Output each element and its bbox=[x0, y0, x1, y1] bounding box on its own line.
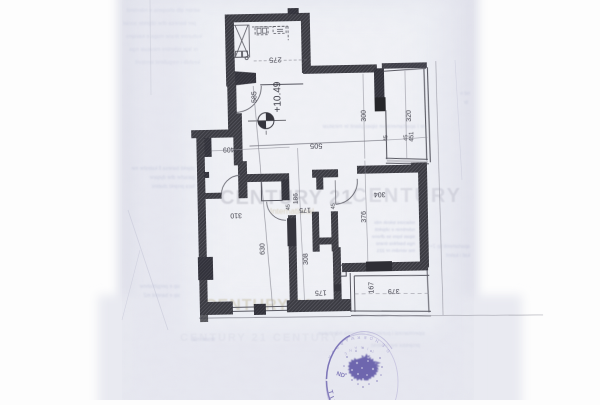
svg-text:sip e banimit m2: sip e banimit m2 bbox=[143, 293, 180, 299]
svg-text:304: 304 bbox=[374, 190, 386, 197]
svg-text:nr leje ndertimi miratuar nga: nr leje ndertimi miratuar nga bbox=[129, 47, 198, 53]
svg-text:45: 45 bbox=[286, 204, 292, 210]
svg-text:ndertimin e objektit: ndertimin e objektit bbox=[374, 227, 415, 233]
svg-text:kati i katert: kati i katert bbox=[445, 253, 470, 259]
svg-text:E: E bbox=[363, 335, 366, 340]
svg-text:R: R bbox=[357, 335, 360, 340]
svg-text:379: 379 bbox=[388, 287, 400, 294]
svg-text:kulturore tirane rruga e kavaj: kulturore tirane rruga e kavajes bbox=[126, 34, 202, 40]
svg-text:310: 310 bbox=[230, 211, 242, 218]
svg-text:308: 308 bbox=[303, 253, 310, 265]
svg-text:me vendim nr 221: me vendim nr 221 bbox=[376, 248, 415, 254]
svg-text:+10.49: +10.49 bbox=[272, 81, 284, 113]
svg-text:CENTURY: CENTURY bbox=[352, 185, 462, 207]
svg-text:451: 451 bbox=[409, 131, 415, 142]
svg-text:585: 585 bbox=[251, 91, 258, 103]
svg-text:sip e pergjithshme: sip e pergjithshme bbox=[139, 284, 180, 290]
svg-text:tir: tir bbox=[464, 100, 469, 106]
svg-text:175: 175 bbox=[299, 206, 311, 213]
svg-text:per banesa dhe objekte social: per banesa dhe objekte social bbox=[123, 21, 196, 27]
svg-text:apartamenti tip 2+1: apartamenti tip 2+1 bbox=[427, 244, 470, 250]
svg-text:sipas lejes se dhene: sipas lejes se dhene bbox=[371, 234, 415, 240]
svg-text:nr i apartamenteve sipas plani: nr i apartamenteve sipas planit te mirat… bbox=[322, 124, 425, 130]
svg-text:409: 409 bbox=[223, 145, 235, 152]
svg-text:faza projekt zbatimi: faza projekt zbatimi bbox=[152, 184, 195, 190]
svg-text:winter alb shoqeria e ndertimi: winter alb shoqeria e ndertimit bbox=[126, 8, 201, 14]
svg-text:630: 630 bbox=[260, 243, 267, 255]
svg-text:167: 167 bbox=[368, 282, 375, 294]
svg-text:relacioni teknik mbi: relacioni teknik mbi bbox=[374, 220, 415, 226]
svg-text:376: 376 bbox=[361, 211, 368, 223]
svg-text:objekti banesa 8 kateshe me: objekti banesa 8 kateshe me bbox=[131, 166, 195, 172]
svg-text:R: R bbox=[360, 345, 363, 350]
svg-text:320: 320 bbox=[406, 110, 413, 122]
svg-text:505: 505 bbox=[310, 142, 323, 151]
svg-text:275: 275 bbox=[269, 55, 282, 64]
svg-text:45: 45 bbox=[331, 203, 337, 209]
svg-text:nga bashkia tirane: nga bashkia tirane bbox=[375, 241, 415, 247]
svg-text:keshilli i rregullimit territo: keshilli i rregullimit territorit bbox=[135, 60, 200, 66]
svg-text:300: 300 bbox=[361, 110, 368, 122]
svg-text:175: 175 bbox=[315, 288, 327, 295]
svg-text:186: 186 bbox=[292, 193, 299, 204]
svg-text:garazhe dhe dyqane: garazhe dhe dyqane bbox=[149, 175, 195, 181]
svg-text:nd n: nd n bbox=[460, 91, 470, 97]
svg-text:CENTURY 21 CENTURY: CENTURY 21 CENTURY bbox=[180, 332, 340, 344]
